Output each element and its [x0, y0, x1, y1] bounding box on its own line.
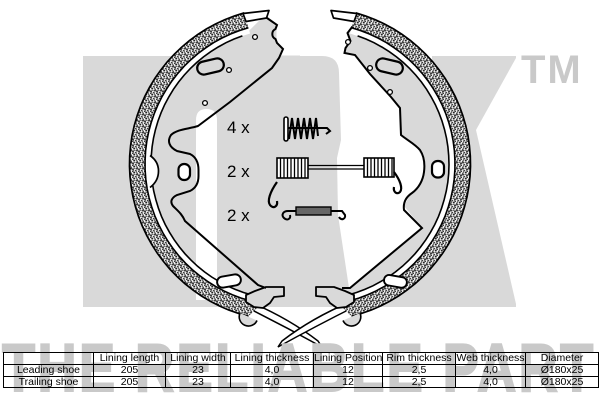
svg-text:2 x: 2 x: [227, 206, 250, 225]
svg-text:2 x: 2 x: [227, 162, 250, 181]
svg-text:4 x: 4 x: [227, 118, 250, 137]
